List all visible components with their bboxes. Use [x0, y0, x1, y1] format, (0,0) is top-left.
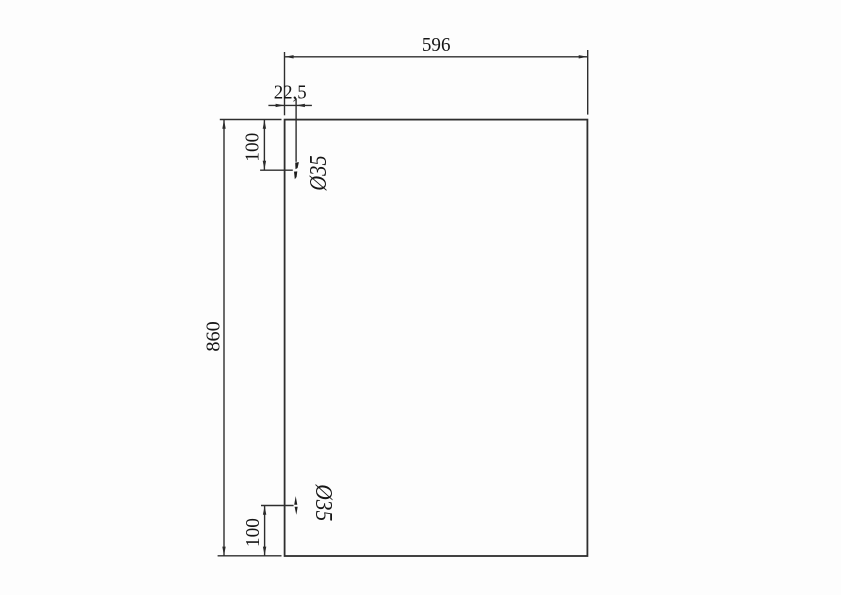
- svg-text:100: 100: [241, 133, 263, 162]
- svg-text:860: 860: [203, 321, 225, 351]
- svg-text:Ø35: Ø35: [306, 155, 332, 191]
- svg-text:Ø35: Ø35: [310, 483, 336, 521]
- svg-text:100: 100: [242, 518, 264, 547]
- svg-text:22,5: 22,5: [274, 81, 307, 103]
- svg-text:596: 596: [422, 34, 451, 56]
